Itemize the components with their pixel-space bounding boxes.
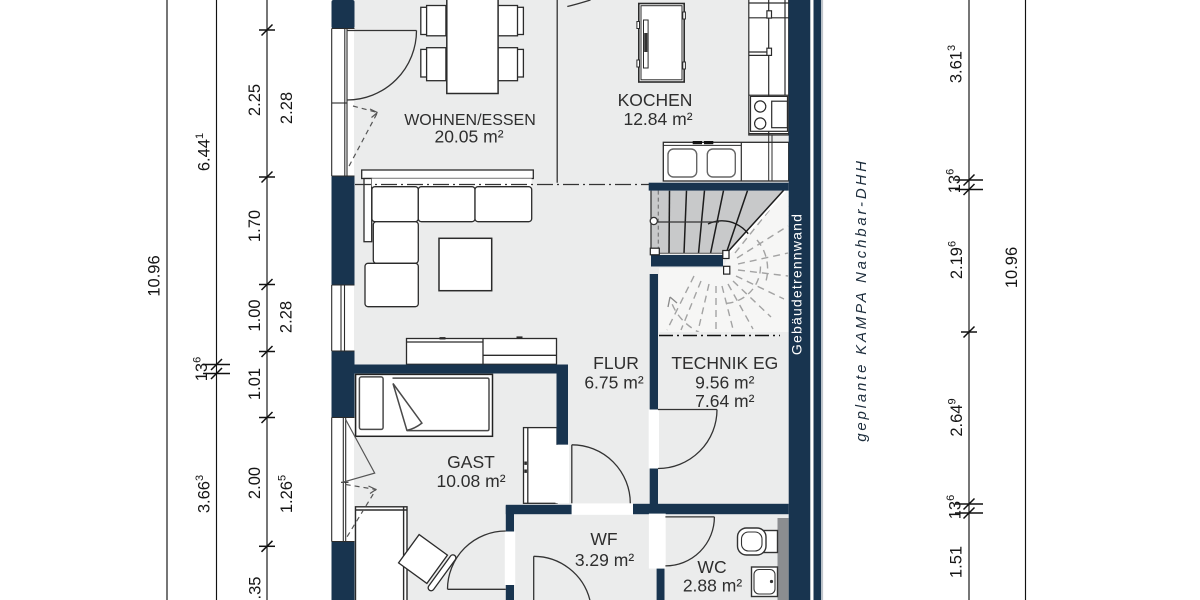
- svg-text:2.25: 2.25: [246, 84, 264, 116]
- svg-text:3.29 m²: 3.29 m²: [575, 550, 634, 570]
- svg-text:1.51: 1.51: [947, 546, 965, 578]
- svg-text:12.84 m²: 12.84 m²: [623, 109, 692, 129]
- svg-text:KOCHEN: KOCHEN: [618, 90, 693, 110]
- svg-text:FLUR: FLUR: [593, 353, 639, 373]
- svg-text:9.56 m²: 9.56 m²: [695, 373, 754, 393]
- svg-text:2.28: 2.28: [278, 92, 296, 124]
- svg-text:10.08 m²: 10.08 m²: [436, 471, 505, 491]
- svg-text:10.96: 10.96: [1003, 247, 1021, 288]
- svg-text:geplante KAMPA Nachbar-DHH: geplante KAMPA Nachbar-DHH: [853, 158, 870, 441]
- svg-text:2.28: 2.28: [277, 301, 295, 333]
- svg-text:6.75 m²: 6.75 m²: [584, 373, 643, 393]
- svg-text:20.05 m²: 20.05 m²: [434, 127, 503, 147]
- svg-text:1.70: 1.70: [246, 210, 264, 242]
- svg-text:GAST: GAST: [447, 452, 495, 472]
- svg-text:10.96: 10.96: [145, 255, 163, 296]
- svg-text:7.64 m²: 7.64 m²: [695, 391, 754, 411]
- svg-text:WF: WF: [590, 529, 617, 549]
- svg-text:.35: .35: [246, 577, 264, 600]
- svg-text:Gebäudetrennwand: Gebäudetrennwand: [789, 213, 805, 355]
- svg-text:TECHNIK EG: TECHNIK EG: [671, 353, 778, 373]
- svg-text:2.88 m²: 2.88 m²: [683, 576, 742, 596]
- svg-text:WC: WC: [697, 557, 726, 577]
- svg-text:1.00: 1.00: [246, 299, 264, 331]
- svg-text:2.00: 2.00: [246, 467, 264, 499]
- svg-text:1.01: 1.01: [246, 368, 264, 400]
